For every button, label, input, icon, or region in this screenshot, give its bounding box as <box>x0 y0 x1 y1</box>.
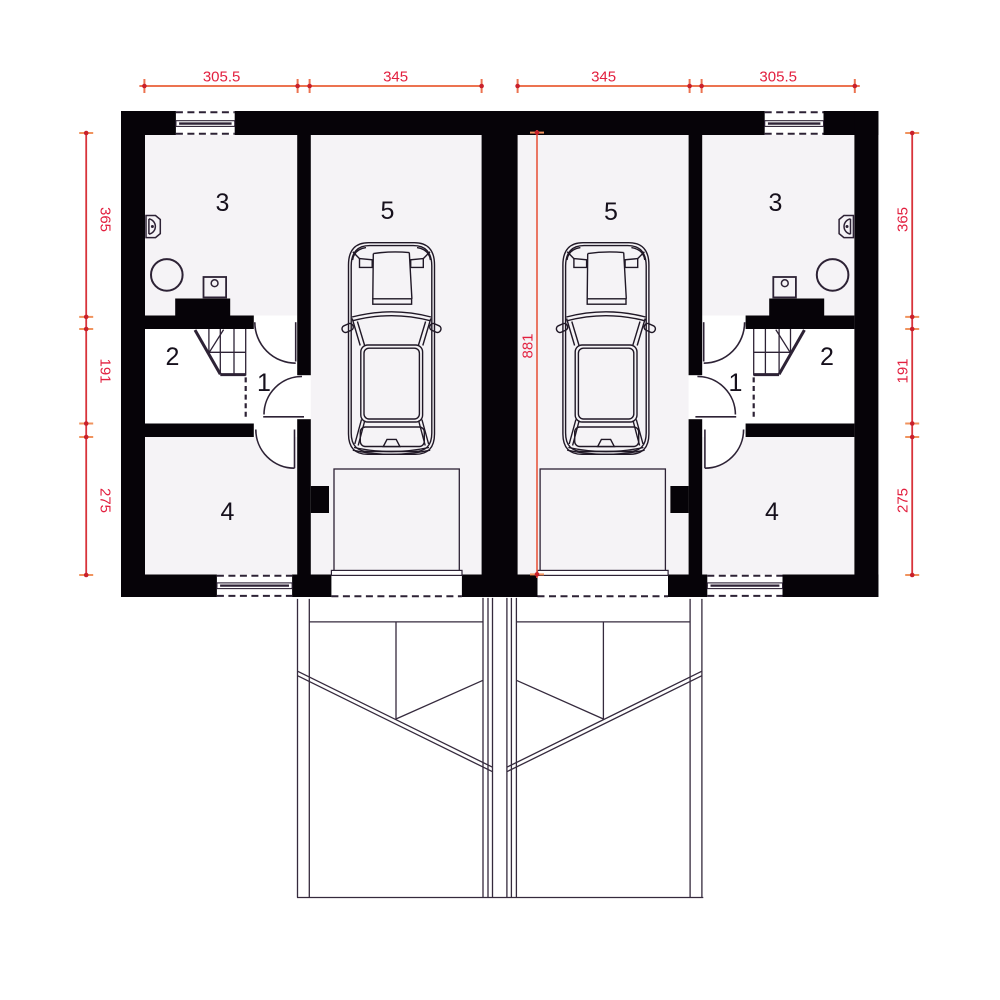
svg-text:275: 275 <box>97 488 114 513</box>
svg-text:3: 3 <box>768 189 782 217</box>
svg-text:345: 345 <box>383 69 408 86</box>
svg-text:305.5: 305.5 <box>759 69 797 86</box>
svg-text:3: 3 <box>216 189 230 217</box>
svg-text:881: 881 <box>520 333 537 358</box>
svg-text:4: 4 <box>221 498 235 526</box>
svg-text:5: 5 <box>604 198 618 226</box>
svg-text:275: 275 <box>895 488 912 513</box>
svg-text:5: 5 <box>381 197 395 225</box>
svg-text:191: 191 <box>895 358 912 383</box>
svg-text:2: 2 <box>820 343 834 371</box>
svg-text:1: 1 <box>257 369 271 397</box>
svg-text:4: 4 <box>765 498 779 526</box>
svg-text:2: 2 <box>166 343 180 371</box>
svg-text:345: 345 <box>591 69 616 86</box>
svg-text:365: 365 <box>895 207 912 232</box>
svg-text:365: 365 <box>97 207 114 232</box>
svg-text:1: 1 <box>728 369 742 397</box>
svg-text:191: 191 <box>97 358 114 383</box>
svg-text:305.5: 305.5 <box>203 69 241 86</box>
